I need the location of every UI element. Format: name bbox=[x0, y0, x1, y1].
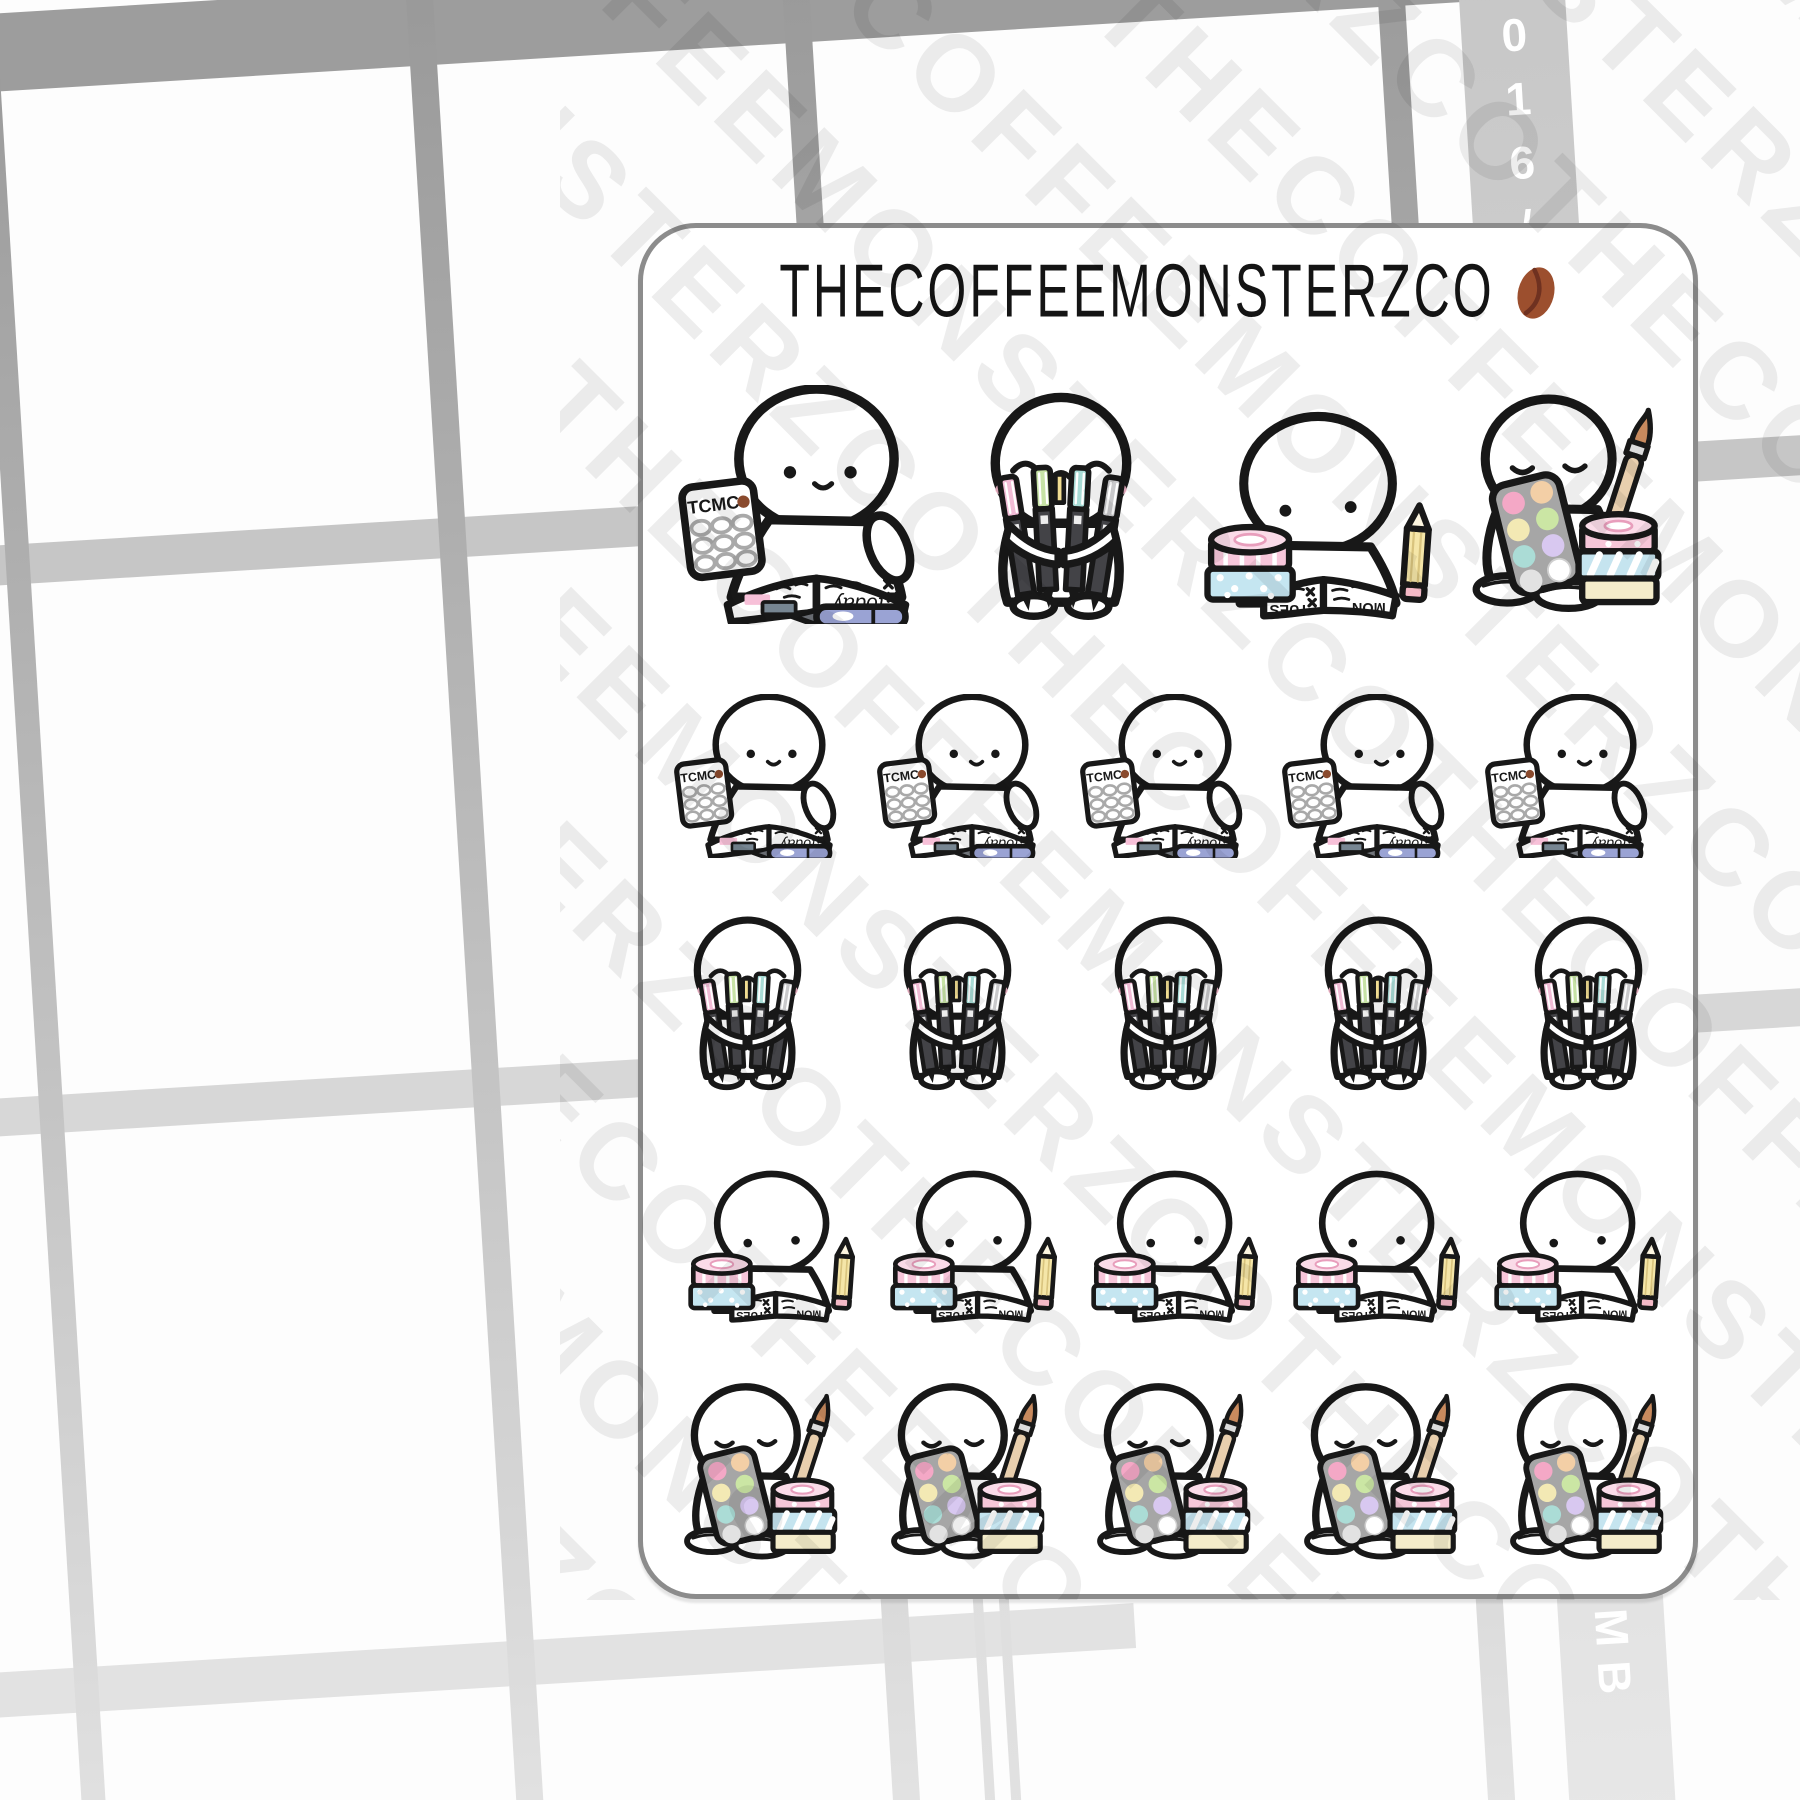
sticker-planner-writing bbox=[1476, 694, 1671, 858]
sticker-weekly-spread bbox=[867, 1170, 1067, 1326]
sticker-weekly-spread bbox=[1068, 1170, 1268, 1326]
sticker-weekly-spread bbox=[665, 1170, 865, 1326]
sticker-planner-writing bbox=[665, 385, 949, 624]
sticker-weekly-spread bbox=[1173, 411, 1445, 624]
sticker-pen-bouquet bbox=[1506, 910, 1671, 1093]
sticker-planner-writing bbox=[665, 694, 860, 858]
brand-title: THECOFFEEMONSTERZCO bbox=[779, 248, 1494, 335]
sticker-paint-supplies bbox=[1078, 1378, 1258, 1569]
sticker-pen-bouquet bbox=[665, 910, 830, 1093]
planner-grid-column-bar bbox=[0, 0, 116, 1800]
sticker-planner-writing bbox=[1273, 694, 1468, 858]
sheet-header: THECOFFEEMONSTERZCO bbox=[643, 262, 1693, 320]
sticker-planner-writing bbox=[1071, 694, 1266, 858]
sticker-paint-supplies bbox=[665, 1378, 845, 1569]
sticker-pen-bouquet bbox=[1086, 910, 1251, 1093]
sticker-paint-supplies bbox=[872, 1378, 1052, 1569]
sticker-row-paint-supplies bbox=[665, 1354, 1671, 1569]
sticker-row-pen-bouquet bbox=[665, 888, 1671, 1093]
sticker-row-planner-writing bbox=[665, 653, 1671, 858]
sticker-sheet: THECOFFEEMONSTERZCO bbox=[638, 223, 1698, 1599]
sticker-paint-supplies bbox=[1491, 1378, 1671, 1569]
sticker-weekly-spread bbox=[1471, 1170, 1671, 1326]
sticker-paint-supplies bbox=[1449, 388, 1671, 624]
sticker-planner-writing bbox=[868, 694, 1063, 858]
product-photo: 2016/2 TEMB TCMC bbox=[0, 0, 1800, 1800]
sticker-row-weekly-spread bbox=[665, 1126, 1671, 1326]
planner-grid-column-bar bbox=[401, 0, 552, 1800]
sticker-pen-bouquet bbox=[875, 910, 1040, 1093]
sticker-pen-bouquet bbox=[953, 384, 1169, 624]
sticker-pen-bouquet bbox=[1296, 910, 1461, 1093]
planner-grid-row-band bbox=[0, 1603, 1136, 1724]
sticker-weekly-spread bbox=[1270, 1170, 1470, 1326]
sticker-row-sampler bbox=[665, 356, 1671, 624]
coffee-bean-icon bbox=[1515, 264, 1557, 322]
sticker-paint-supplies bbox=[1285, 1378, 1465, 1569]
